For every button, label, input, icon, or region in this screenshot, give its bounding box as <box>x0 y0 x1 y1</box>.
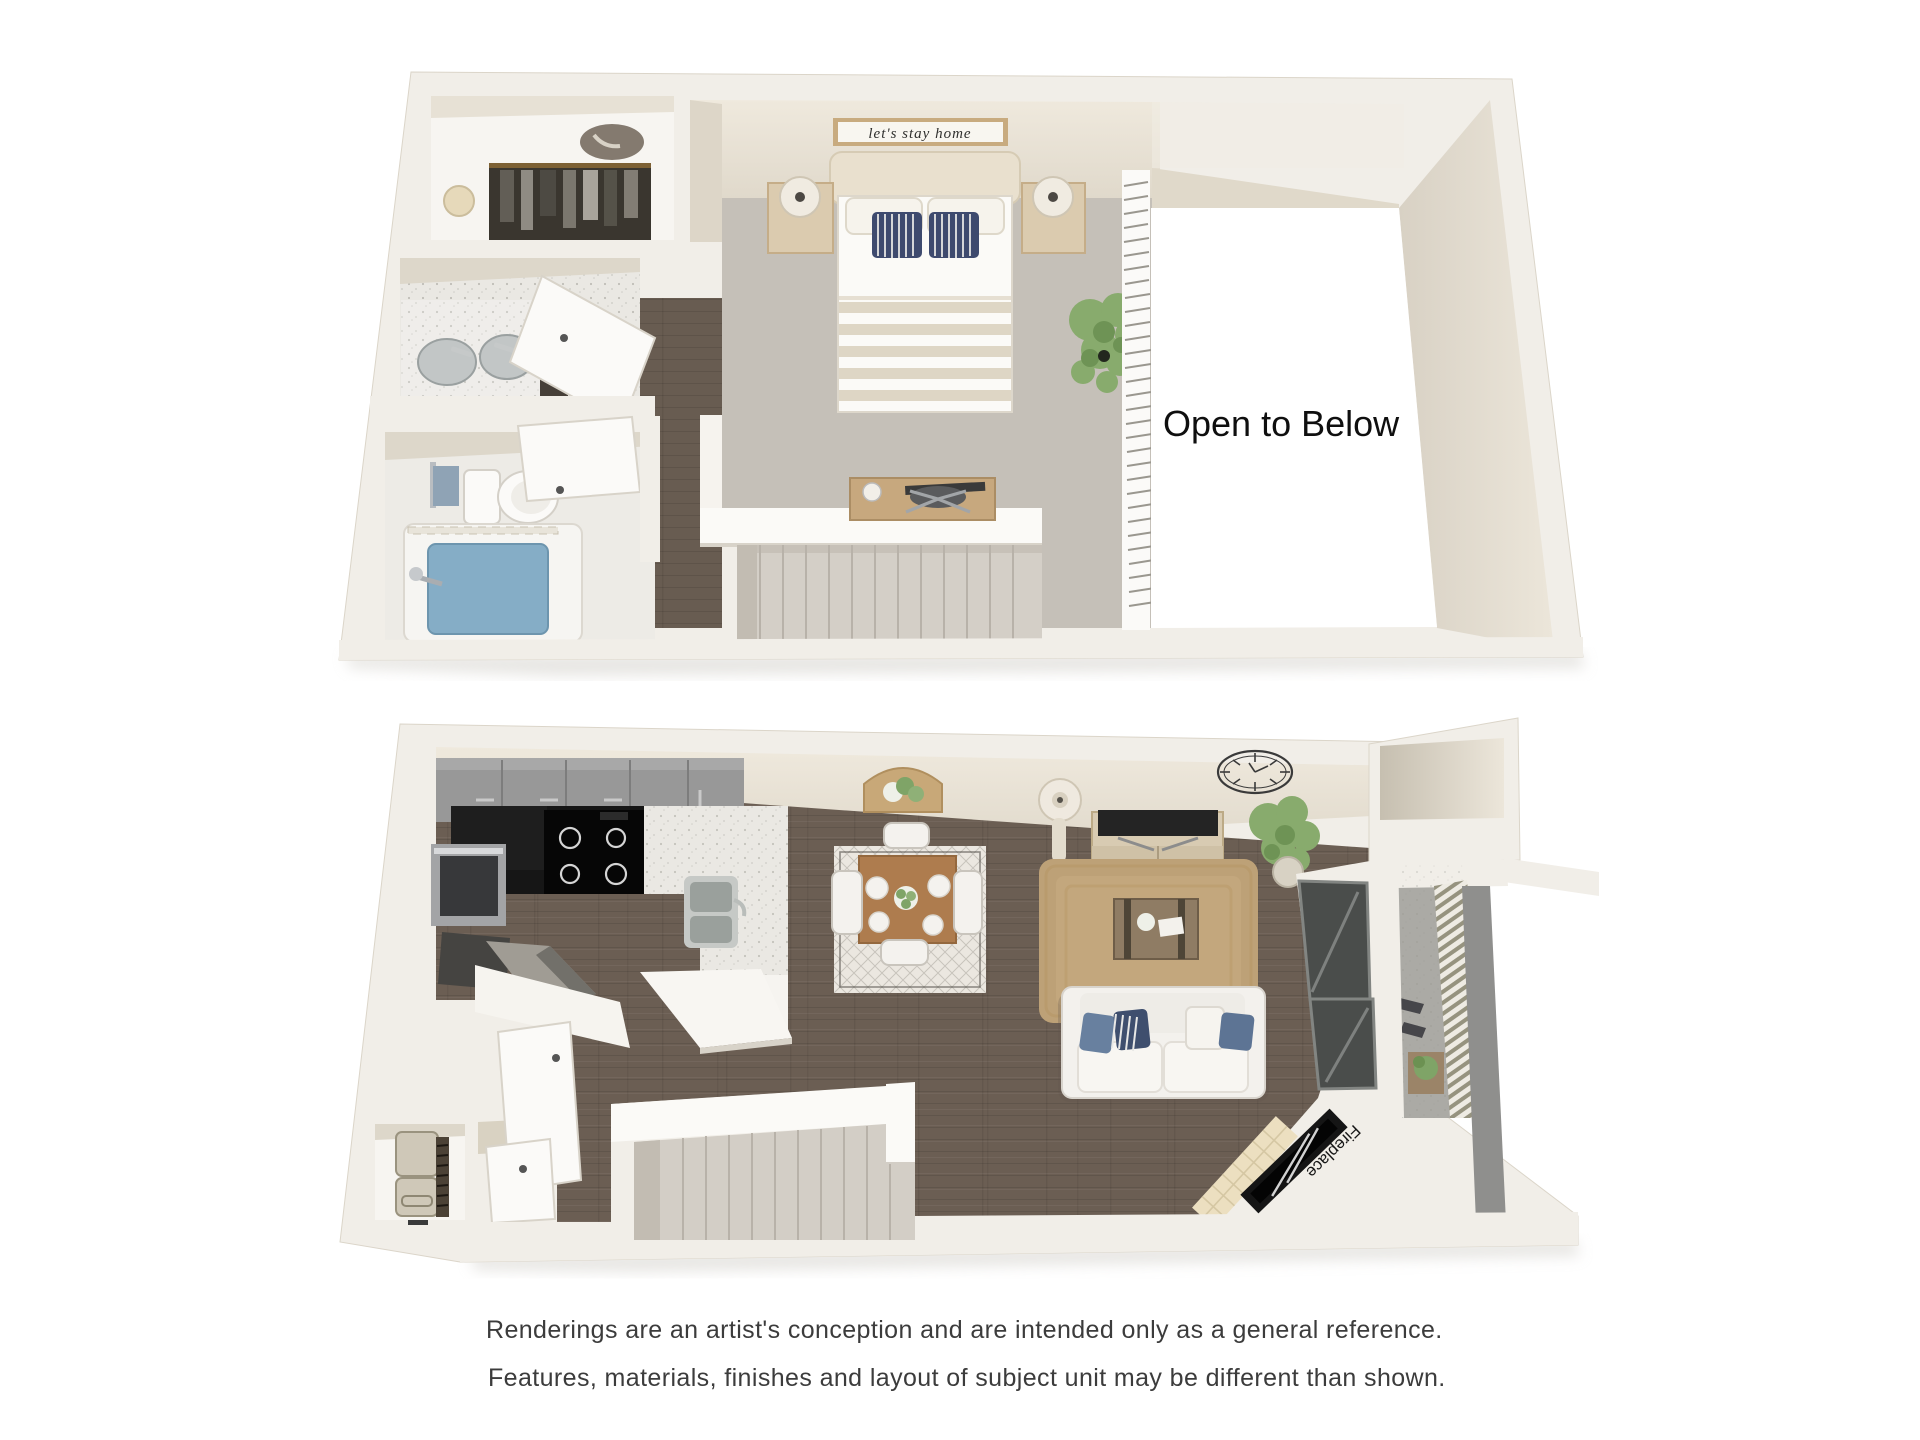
svg-text:Renderings are an artist's con: Renderings are an artist's conception an… <box>486 1316 1443 1344</box>
svg-text:Open to Below: Open to Below <box>1163 403 1400 444</box>
svg-text:let's stay home: let's stay home <box>868 126 971 142</box>
svg-text:Features, materials, finishes: Features, materials, finishes and layout… <box>488 1364 1446 1392</box>
